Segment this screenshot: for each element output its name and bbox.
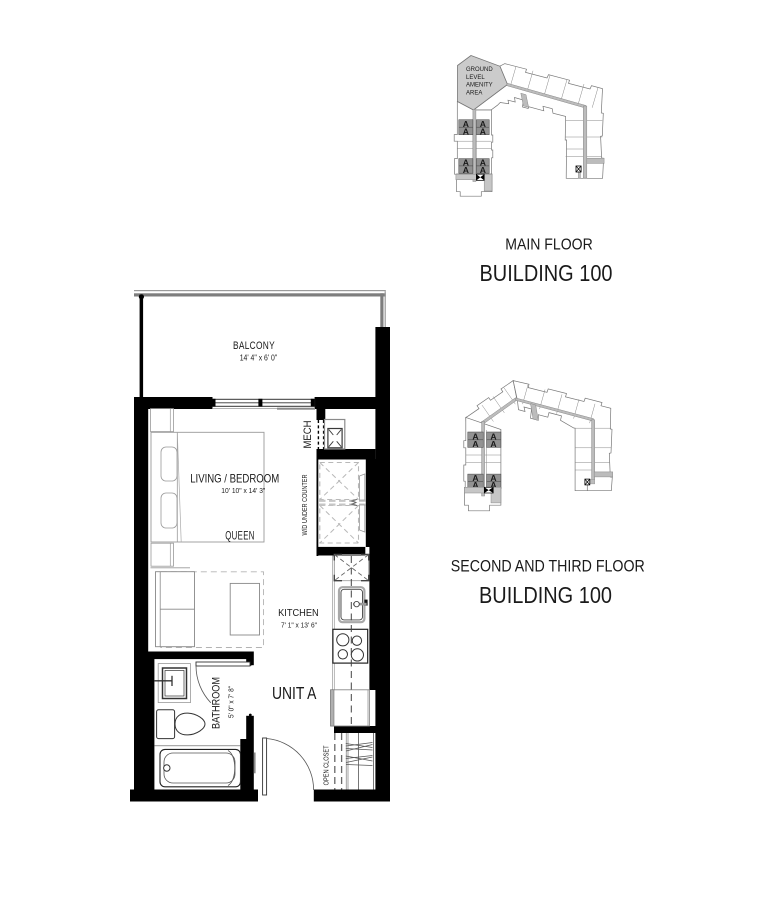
svg-text:KITCHEN: KITCHEN: [278, 608, 319, 619]
svg-text:BALCONY: BALCONY: [233, 340, 275, 352]
svg-text:LIVING / BEDROOM: LIVING / BEDROOM: [190, 472, 279, 486]
svg-text:10' 10" x 14' 3": 10' 10" x 14' 3": [221, 486, 265, 495]
svg-text:SECOND AND THIRD FLOOR: SECOND AND THIRD FLOOR: [451, 557, 645, 576]
svg-text:A: A: [472, 439, 478, 449]
svg-text:A: A: [463, 126, 469, 136]
svg-text:5' 0" x 7' 8": 5' 0" x 7' 8": [227, 686, 236, 718]
svg-text:A: A: [480, 165, 486, 175]
svg-text:7' 1" x 13' 6": 7' 1" x 13' 6": [281, 620, 317, 629]
svg-text:A: A: [480, 126, 486, 136]
svg-text:A: A: [463, 165, 469, 175]
svg-text:BATHROOM: BATHROOM: [211, 677, 223, 729]
svg-text:OPEN CLOSET: OPEN CLOSET: [323, 745, 331, 786]
svg-text:A: A: [490, 439, 496, 449]
svg-text:QUEEN: QUEEN: [225, 531, 255, 543]
svg-text:MECH: MECH: [302, 421, 314, 449]
svg-text:BUILDING 100: BUILDING 100: [480, 260, 613, 286]
svg-text:W/D UNDER COUNTER: W/D UNDER COUNTER: [300, 474, 309, 535]
svg-text:MAIN FLOOR: MAIN FLOOR: [505, 237, 593, 254]
svg-text:AREA: AREA: [466, 91, 482, 97]
svg-text:GROUND: GROUND: [466, 67, 493, 73]
svg-text:AMENITY: AMENITY: [466, 83, 493, 89]
svg-text:UNIT A: UNIT A: [272, 683, 317, 703]
svg-text:LEVEL: LEVEL: [466, 75, 485, 81]
svg-text:BUILDING 100: BUILDING 100: [479, 582, 612, 608]
svg-text:14' 4" x 6' 0": 14' 4" x 6' 0": [240, 354, 278, 363]
